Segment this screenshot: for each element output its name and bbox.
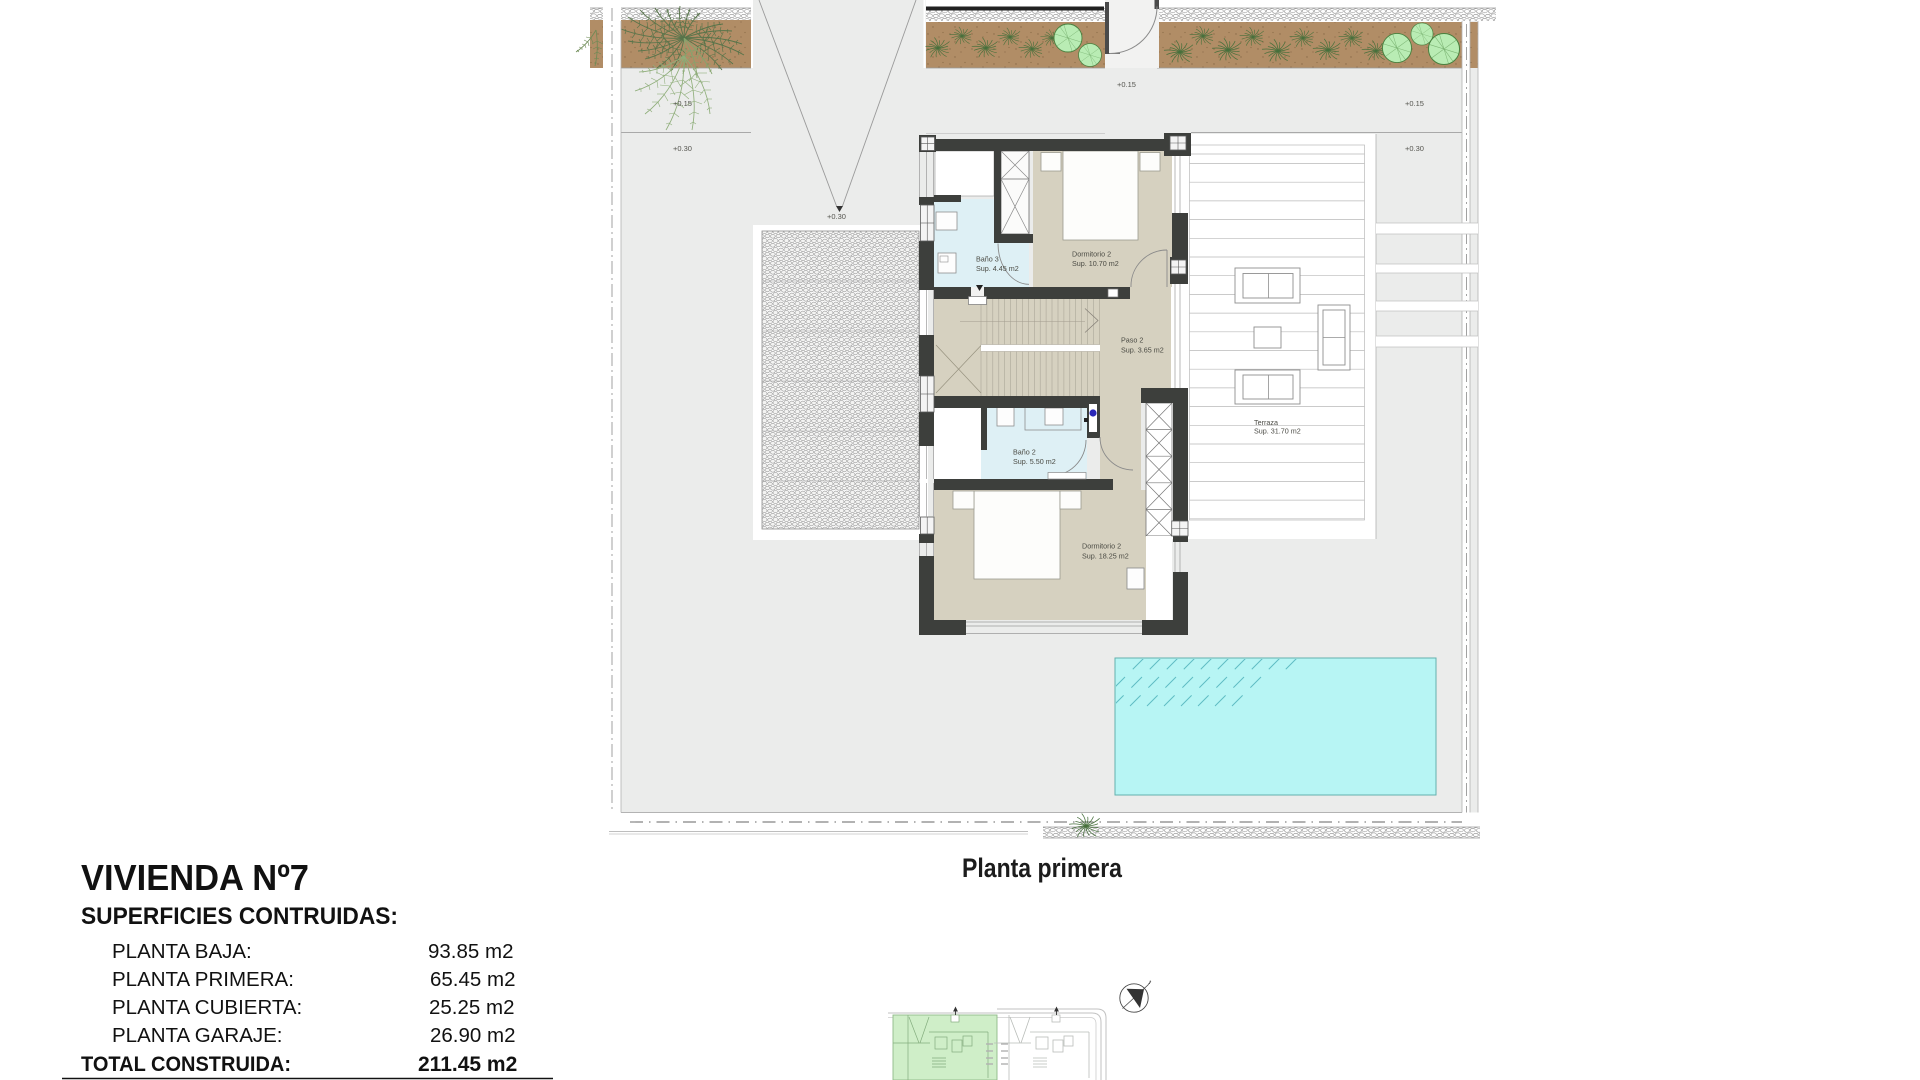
svg-text:+0.15: +0.15 [1405,99,1424,108]
svg-text:25.25 m2: 25.25 m2 [429,996,514,1019]
svg-text:Sup. 18.25 m2: Sup. 18.25 m2 [1082,552,1129,561]
svg-text:+0.30: +0.30 [827,212,846,221]
svg-text:Dormitorio 2: Dormitorio 2 [1082,542,1121,551]
svg-text:Sup. 4.45 m2: Sup. 4.45 m2 [976,264,1019,273]
svg-text:+0.30: +0.30 [673,144,692,153]
svg-text:Sup. 31.70 m2: Sup. 31.70 m2 [1254,427,1301,436]
svg-text:65.45 m2: 65.45 m2 [430,968,515,991]
svg-text:Dormitorio 2: Dormitorio 2 [1072,250,1111,259]
svg-text:+0.15: +0.15 [673,99,692,108]
svg-text:+0.15: +0.15 [1117,80,1136,89]
svg-text:PLANTA BAJA:: PLANTA BAJA: [112,940,252,963]
svg-text:PLANTA CUBIERTA:: PLANTA CUBIERTA: [112,996,302,1019]
svg-text:Sup. 10.70 m2: Sup. 10.70 m2 [1072,259,1119,268]
svg-text:Sup. 5.50 m2: Sup. 5.50 m2 [1013,457,1056,466]
svg-text:26.90 m2: 26.90 m2 [430,1024,515,1047]
svg-text:Baño 3: Baño 3 [976,255,999,264]
svg-text:Sup. 3.65 m2: Sup. 3.65 m2 [1121,346,1164,355]
svg-text:Paso 2: Paso 2 [1121,336,1143,345]
svg-text:Planta primera: Planta primera [962,853,1122,883]
svg-text:PLANTA PRIMERA:: PLANTA PRIMERA: [112,968,294,991]
svg-text:VIVIENDA Nº7: VIVIENDA Nº7 [81,857,309,898]
svg-text:PLANTA GARAJE:: PLANTA GARAJE: [112,1024,283,1047]
svg-text:+0.30: +0.30 [1405,144,1424,153]
svg-text:TOTAL CONSTRUIDA:: TOTAL CONSTRUIDA: [81,1053,291,1076]
svg-text:SUPERFICIES CONTRUIDAS:: SUPERFICIES CONTRUIDAS: [81,903,398,930]
svg-text:Baño 2: Baño 2 [1013,448,1036,457]
svg-text:211.45 m2: 211.45 m2 [418,1053,517,1076]
svg-text:93.85 m2: 93.85 m2 [428,940,513,963]
